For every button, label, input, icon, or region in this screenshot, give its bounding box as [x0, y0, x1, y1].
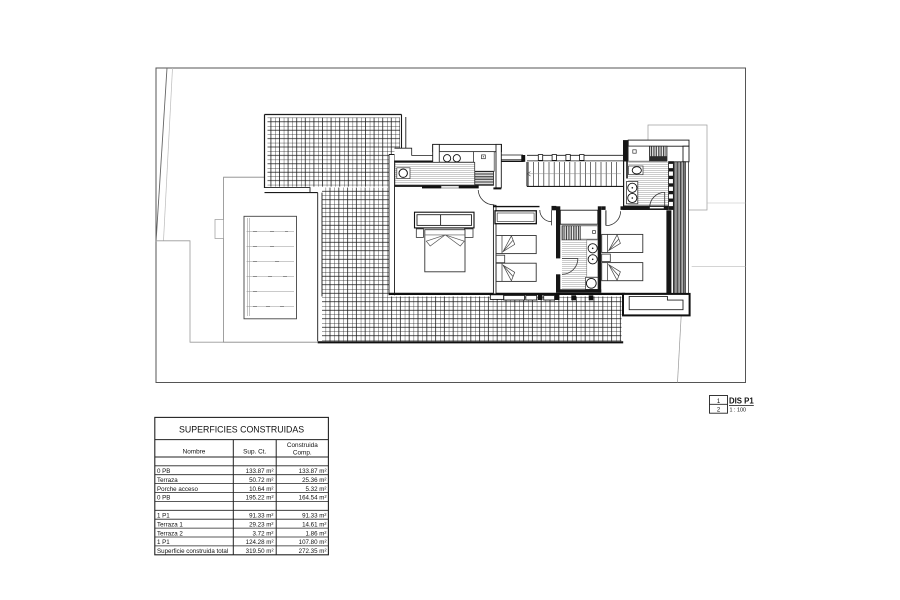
svg-text:1 P1: 1 P1 [157, 513, 170, 520]
svg-text:Construida: Construida [287, 442, 318, 449]
svg-text:319.50 m²: 319.50 m² [246, 548, 274, 555]
svg-text:91.33 m²: 91.33 m² [249, 513, 273, 520]
svg-text:5.32 m²: 5.32 m² [306, 486, 327, 493]
svg-text:195.22 m²: 195.22 m² [246, 495, 274, 502]
svg-text:Terraza 1: Terraza 1 [157, 521, 183, 528]
svg-text:Terraza 2: Terraza 2 [157, 530, 183, 537]
svg-text:1.86 m²: 1.86 m² [306, 530, 327, 537]
svg-text:SUPERFICIES CONSTRUIDAS: SUPERFICIES CONSTRUIDAS [179, 424, 304, 434]
svg-text:0 PB: 0 PB [157, 495, 170, 502]
svg-text:Nombre: Nombre [183, 449, 206, 456]
svg-text:164.54 m²: 164.54 m² [299, 495, 327, 502]
svg-text:124.28 m²: 124.28 m² [246, 539, 274, 546]
svg-text:14.61 m²: 14.61 m² [302, 521, 326, 528]
svg-text:3.72 m²: 3.72 m² [253, 530, 274, 537]
svg-text:91.33 m²: 91.33 m² [302, 513, 326, 520]
svg-text:107.80 m²: 107.80 m² [299, 539, 327, 546]
svg-text:DIS P1: DIS P1 [729, 397, 754, 406]
svg-text:Terraza: Terraza [157, 477, 178, 484]
svg-text:Comp.: Comp. [293, 450, 312, 457]
svg-text:133.87 m²: 133.87 m² [246, 468, 274, 475]
svg-text:Sup. Ct.: Sup. Ct. [243, 449, 266, 456]
svg-text:29.23 m²: 29.23 m² [249, 521, 273, 528]
svg-text:0 PB: 0 PB [157, 468, 170, 475]
svg-text:10.64 m²: 10.64 m² [249, 486, 273, 493]
svg-text:133.87 m²: 133.87 m² [299, 468, 327, 475]
svg-text:1 P1: 1 P1 [157, 539, 170, 546]
svg-text:Superficie construida total: Superficie construida total [157, 548, 228, 555]
svg-text:25.36 m²: 25.36 m² [302, 477, 326, 484]
svg-text:Porche acceso: Porche acceso [157, 486, 198, 493]
svg-text:1 : 100: 1 : 100 [730, 408, 747, 414]
svg-text:272.35 m²: 272.35 m² [299, 548, 327, 555]
svg-text:50.72 m²: 50.72 m² [249, 477, 273, 484]
